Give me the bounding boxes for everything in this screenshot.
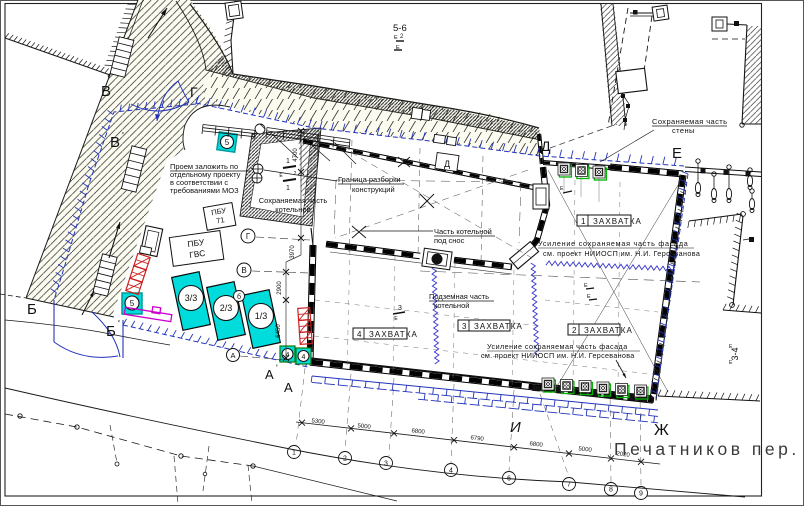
svg-text:5: 5: [225, 138, 230, 147]
svg-text:ЗАХВАТКА: ЗАХВАТКА: [474, 322, 523, 331]
svg-text:Г: Г: [190, 84, 198, 100]
svg-text:Е: Е: [394, 35, 398, 41]
svg-text:4700: 4700: [293, 148, 299, 162]
svg-text:2/3: 2/3: [220, 303, 233, 313]
svg-text:конструкций: конструкций: [352, 185, 395, 194]
svg-text:Ж: Ж: [654, 422, 669, 439]
svg-text:Часть котельной: Часть котельной: [434, 227, 492, 236]
svg-text:71: 71: [215, 215, 225, 225]
svg-text:котельной: котельной: [434, 301, 469, 310]
svg-text:Е: Е: [587, 294, 591, 300]
svg-text:ЗАХВАТКА: ЗАХВАТКА: [584, 326, 633, 335]
svg-text:2: 2: [572, 326, 577, 335]
svg-text:В: В: [241, 266, 246, 275]
svg-text:Д: Д: [541, 138, 551, 154]
svg-text:3: 3: [462, 322, 467, 331]
svg-text:Граница разборки: Граница разборки: [338, 175, 401, 184]
svg-text:4: 4: [357, 330, 362, 339]
svg-text:В: В: [101, 83, 111, 100]
svg-text:Печатников пер.: Печатников пер.: [614, 439, 800, 459]
svg-text:3: 3: [384, 461, 388, 468]
svg-text:В: В: [110, 134, 120, 151]
svg-text:Г: Г: [246, 232, 251, 241]
svg-text:7: 7: [567, 482, 571, 489]
svg-text:1: 1: [286, 185, 290, 192]
svg-text:5: 5: [130, 299, 135, 308]
svg-text:Сохраняемая часть: Сохраняемая часть: [652, 117, 727, 126]
svg-text:Усиление сохраняемая часть фас: Усиление сохраняемая часть фасада: [487, 342, 628, 351]
svg-text:Подземная часть: Подземная часть: [429, 292, 489, 301]
svg-text:А: А: [284, 380, 293, 395]
svg-text:1: 1: [581, 217, 586, 226]
svg-text:2: 2: [294, 171, 297, 177]
svg-text:требованиями МОЗ: требованиями МОЗ: [170, 186, 239, 195]
svg-text:ЗАХВАТКА: ЗАХВАТКА: [593, 217, 642, 226]
svg-text:': ': [118, 319, 120, 330]
svg-text:ЗАХВАТКА: ЗАХВАТКА: [369, 330, 418, 339]
svg-text:1: 1: [292, 450, 296, 457]
svg-text:3/3: 3/3: [185, 293, 198, 303]
svg-text:': ': [122, 131, 124, 142]
svg-text:Б: Б: [106, 323, 116, 340]
svg-text:8: 8: [609, 487, 613, 494]
svg-text:Е: Е: [584, 283, 588, 289]
svg-text:Е: Е: [672, 145, 682, 162]
svg-text:4: 4: [302, 354, 306, 361]
svg-text:Усиление сохраняемая часть фас: Усиление сохраняемая часть фасада: [538, 239, 689, 248]
svg-text:5-6: 5-6: [393, 23, 407, 34]
svg-text:стены: стены: [672, 126, 695, 135]
svg-text:1/3: 1/3: [255, 311, 268, 321]
svg-text:см. проект НИИОСП им. Н.И. Гер: см. проект НИИОСП им. Н.И. Герсеванова: [543, 249, 700, 258]
svg-text:под снос: под снос: [434, 236, 465, 245]
svg-text:1: 1: [286, 158, 290, 165]
svg-text:А: А: [230, 351, 235, 360]
svg-text:А: А: [265, 367, 274, 382]
svg-text:котельной: котельной: [275, 205, 310, 214]
svg-text:3: 3: [398, 305, 402, 312]
svg-text:Д: Д: [444, 159, 450, 169]
svg-text:': ': [276, 363, 278, 373]
svg-text:Б: Б: [27, 301, 37, 318]
svg-text:б: б: [237, 293, 241, 301]
svg-text:см. проект НИИОСП им. Н.И. Гер: см. проект НИИОСП им. Н.И. Герсеванова: [481, 351, 635, 360]
svg-text:3970: 3970: [290, 245, 296, 259]
svg-text:6450: 6450: [276, 324, 282, 338]
svg-text:Сохраняемая часть: Сохраняемая часть: [259, 196, 328, 205]
svg-text:2900: 2900: [277, 281, 283, 295]
svg-text:9: 9: [639, 491, 643, 498]
